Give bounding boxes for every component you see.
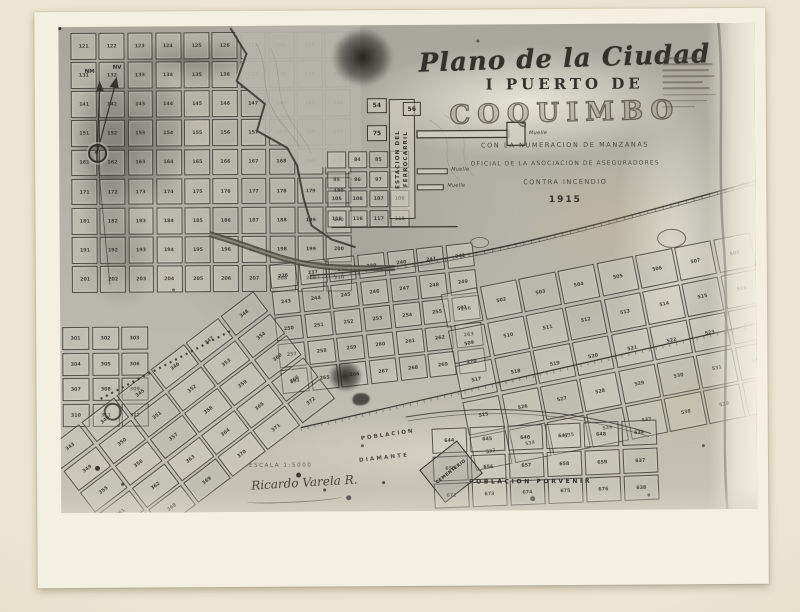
legend-line [663, 63, 713, 65]
pier-label: Muelle [447, 183, 465, 189]
water-contour [256, 44, 299, 148]
map-bottom-fade [61, 485, 757, 513]
railway-ties-south [300, 325, 757, 430]
compass-rose [88, 144, 107, 163]
water-contour [270, 48, 311, 154]
porvenir-label: POBLACION PORVENIR [469, 478, 592, 486]
photo-specks [58, 27, 61, 30]
legend-line [663, 100, 707, 102]
pond [471, 237, 489, 247]
legend-line [663, 82, 703, 84]
station-boundary-line [332, 227, 458, 228]
compass-arrowhead-nm [96, 81, 104, 92]
map-year: 1915 [409, 194, 721, 206]
compass-arrowhead-nv [110, 77, 119, 89]
dotted-boundary [100, 330, 232, 399]
road-curve-2 [408, 412, 649, 437]
legend-line [663, 88, 710, 90]
compass-tail [97, 153, 110, 285]
compass-label-nm: NM [85, 69, 95, 75]
estero-river-highlight [210, 233, 395, 269]
scale-label: ESCALA 1:5000 [249, 463, 312, 469]
legend-line [663, 106, 695, 108]
compass-label-nv: NV [113, 65, 122, 71]
landmark-ring [105, 404, 121, 420]
pier-label: Muelle [451, 167, 469, 173]
overexposed-right-edge [706, 23, 757, 509]
map-image: 1211221231241251261271281291301311321331… [58, 23, 757, 513]
map-subtitle-1: CON LA NUMERACION DE MANZANAS [409, 140, 721, 150]
cemetery-label: CEMENTERIO [435, 458, 467, 485]
road-curve [406, 409, 651, 435]
pond [658, 229, 686, 247]
pier-label: Muelle [529, 130, 547, 136]
legend-line [663, 57, 705, 59]
legend-line [663, 69, 709, 71]
photo-print: 1211221231241251261271281291301311321331… [34, 8, 769, 588]
railway-line-south [300, 323, 757, 428]
